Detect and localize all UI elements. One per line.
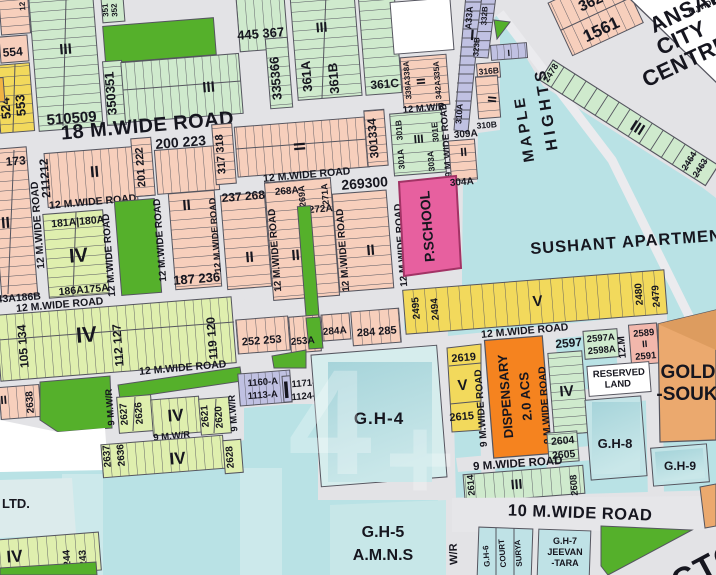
svg-text:G.H-8: G.H-8 [598,436,633,451]
svg-text:III: III [202,79,216,97]
svg-text:LAND: LAND [604,378,631,390]
svg-text:303A: 303A [425,151,437,172]
svg-text:II: II [90,164,100,182]
svg-text:2637: 2637 [101,444,114,467]
svg-text:III: III [315,19,328,36]
svg-text:323B: 323B [471,37,481,57]
svg-text:II: II [642,339,648,350]
svg-text:III: III [510,476,523,493]
svg-text:361B: 361B [325,62,342,94]
svg-text:A.M.N.S: A.M.N.S [353,547,414,564]
svg-text:2494: 2494 [429,297,442,320]
svg-text:310B: 310B [476,119,497,131]
svg-text:2597: 2597 [555,335,583,351]
svg-text:2621: 2621 [199,404,212,427]
svg-text:352: 352 [109,3,119,18]
svg-text:V: V [457,377,468,395]
svg-text:IV: IV [167,405,185,425]
svg-text:III: III [59,41,73,59]
svg-text:2619: 2619 [451,351,476,365]
svg-text:284A: 284A [322,325,347,338]
svg-text:II: II [460,145,468,159]
svg-text:IV: IV [75,321,98,348]
svg-text:2495: 2495 [410,296,423,319]
svg-text:301B: 301B [393,120,405,141]
svg-text:2636: 2636 [115,443,128,466]
svg-text:2628: 2628 [224,445,237,468]
svg-text:2626: 2626 [133,401,146,424]
svg-text:272A: 272A [308,203,333,216]
svg-text:JEEVAN: JEEVAN [547,547,582,557]
svg-text:2480: 2480 [633,282,646,305]
svg-text:2589: 2589 [633,327,655,340]
svg-text:G.H-6: G.H-6 [481,545,492,568]
svg-text:554: 554 [2,44,23,60]
svg-text:II: II [292,141,310,151]
svg-text:2479: 2479 [650,284,663,307]
svg-text:269A: 269A [296,185,308,208]
svg-text:361C: 361C [370,76,400,92]
svg-text:332B: 332B [479,6,489,26]
svg-text:V: V [532,293,543,311]
svg-text:IV: IV [6,546,24,566]
svg-text:II: II [1,215,11,233]
svg-text:2627: 2627 [118,402,131,425]
svg-text:IV: IV [169,448,187,468]
svg-text:2615: 2615 [449,410,474,424]
svg-text:271A: 271A [319,183,331,206]
svg-text:310A: 310A [453,103,464,124]
svg-text:4: 4 [288,338,371,506]
svg-text:2591: 2591 [635,350,658,363]
svg-text:173: 173 [5,153,26,169]
svg-text:II: II [414,77,428,85]
svg-text:II: II [182,197,192,215]
svg-text:II: II [485,95,500,103]
svg-text:IV: IV [559,382,574,400]
svg-text:II: II [245,249,255,267]
svg-text:II: II [366,242,376,260]
svg-text:II: II [291,247,301,265]
svg-text:12: 12 [18,1,28,11]
svg-text:304A: 304A [449,176,474,189]
svg-text:361A: 361A [298,60,315,93]
svg-text:301A: 301A [395,149,407,170]
svg-text:2620: 2620 [213,405,226,428]
svg-text:G.H-5: G.H-5 [362,524,405,541]
svg-text:12.M: 12.M [616,336,629,359]
svg-text:LTD.: LTD. [2,496,30,511]
svg-text:A33A: A33A [463,5,475,29]
svg-text:II: II [0,393,8,407]
svg-text:-SOUK: -SOUK [656,384,716,405]
svg-text:553: 553 [12,94,29,117]
svg-text:2604: 2604 [551,434,575,448]
svg-text:GOLD: GOLD [661,362,716,383]
svg-text:2608: 2608 [568,474,581,496]
svg-text:III: III [413,132,424,147]
svg-text:2614: 2614 [465,474,478,497]
svg-text:IV: IV [68,244,89,267]
svg-text:G.H-9: G.H-9 [664,459,696,473]
svg-text:G.H-7: G.H-7 [553,536,577,546]
svg-text:W/R: W/R [448,543,461,565]
svg-text:-TARA: -TARA [551,558,579,568]
svg-text:2638: 2638 [24,390,37,413]
